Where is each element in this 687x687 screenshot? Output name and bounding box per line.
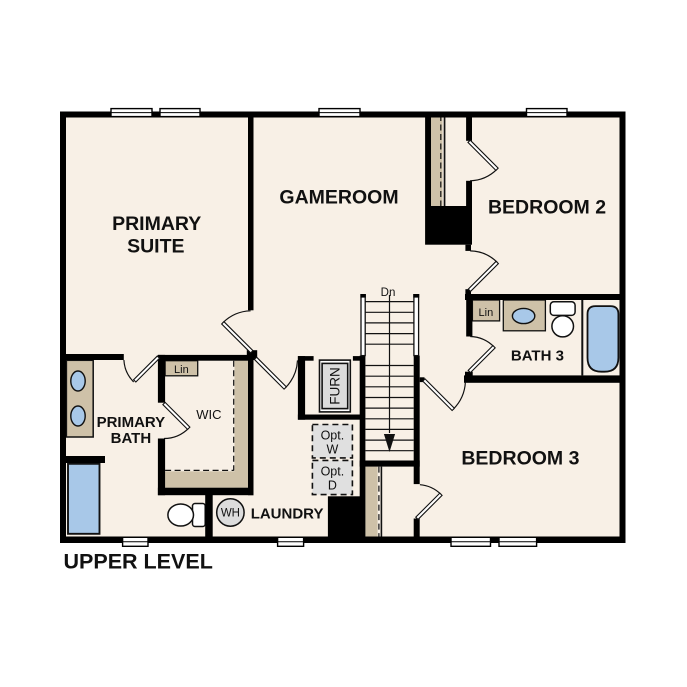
svg-text:Dn: Dn bbox=[381, 287, 396, 299]
svg-text:BEDROOM 2: BEDROOM 2 bbox=[488, 197, 606, 219]
svg-text:Lin: Lin bbox=[174, 364, 189, 376]
svg-text:PRIMARY: PRIMARY bbox=[97, 414, 166, 431]
svg-text:UPPER LEVEL: UPPER LEVEL bbox=[64, 550, 213, 574]
svg-text:WIC: WIC bbox=[196, 407, 221, 422]
svg-text:WH: WH bbox=[221, 508, 240, 520]
svg-text:Lin: Lin bbox=[479, 307, 494, 319]
svg-text:D: D bbox=[328, 479, 337, 493]
svg-text:W: W bbox=[326, 443, 338, 457]
svg-text:BEDROOM 3: BEDROOM 3 bbox=[461, 448, 579, 470]
svg-text:BATH 3: BATH 3 bbox=[511, 348, 564, 365]
svg-text:BATH: BATH bbox=[111, 430, 152, 447]
svg-text:FURN: FURN bbox=[327, 367, 342, 405]
svg-text:Opt.: Opt. bbox=[321, 429, 345, 443]
svg-text:GAMEROOM: GAMEROOM bbox=[279, 187, 398, 209]
svg-text:LAUNDRY: LAUNDRY bbox=[251, 506, 324, 523]
svg-text:SUITE: SUITE bbox=[127, 235, 184, 257]
svg-text:PRIMARY: PRIMARY bbox=[112, 213, 201, 235]
svg-text:Opt.: Opt. bbox=[321, 465, 345, 479]
